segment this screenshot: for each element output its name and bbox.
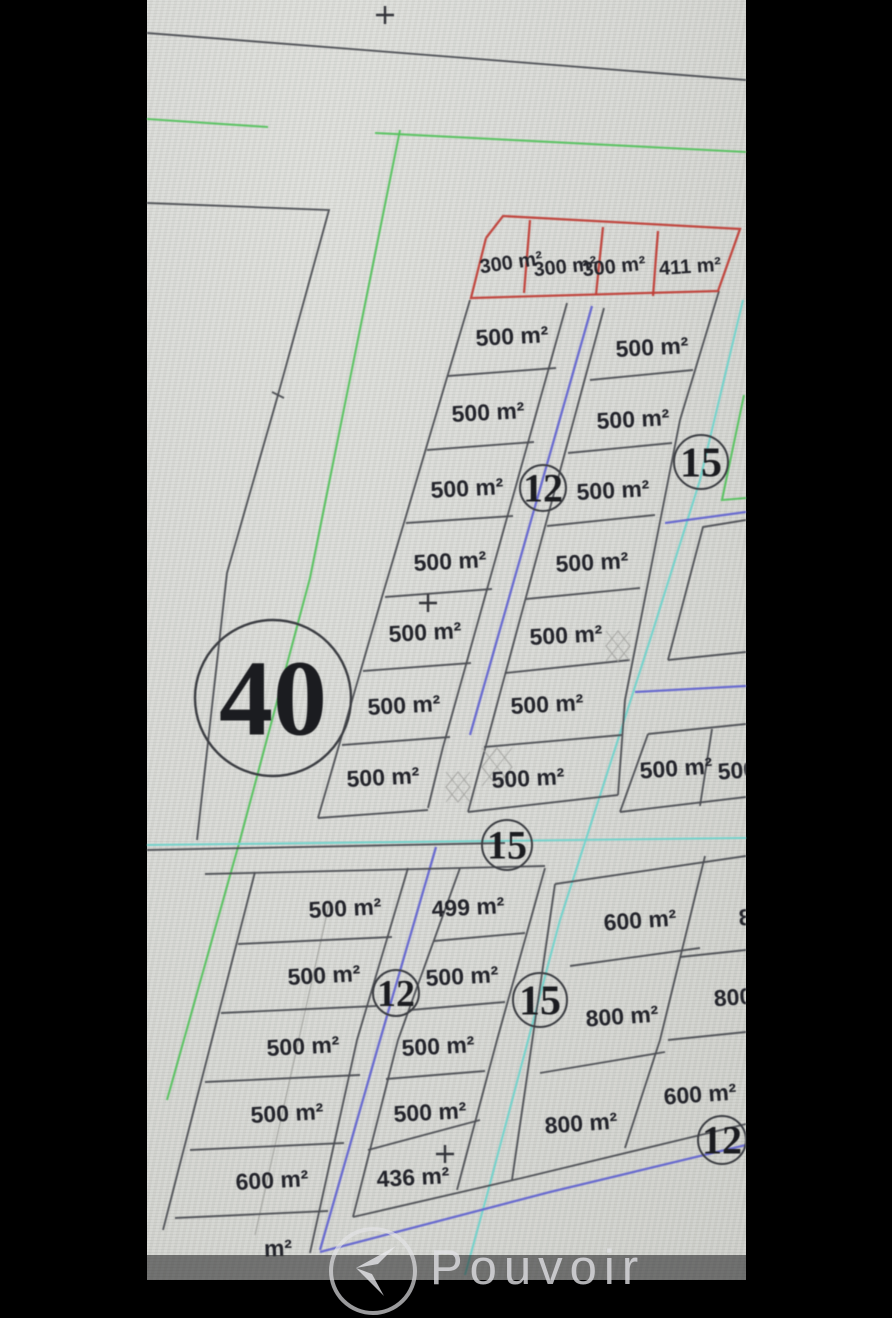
parcel-boundary-line (448, 368, 556, 376)
road-width-number: 40 (219, 640, 327, 759)
plot-area-label: 500 m² (308, 893, 382, 923)
parcel-boundary-line (590, 370, 693, 380)
road-width-number: 12 (523, 466, 563, 511)
plot-area-label: 500 m² (401, 1031, 475, 1061)
parcel-boundary-line (410, 1002, 505, 1010)
plot-area-label: 500 m² (451, 397, 525, 427)
parcel-boundary-line (385, 589, 492, 597)
plot-area-label: 500 m² (367, 690, 441, 720)
crosshair-mark (436, 1145, 454, 1163)
parcel-boundary-line (318, 810, 428, 818)
parcel-boundary-line (406, 516, 513, 523)
plot-area-label: 800 m² (544, 1108, 619, 1139)
parcel-boundary-line (342, 737, 450, 745)
parcel-boundary-line (680, 950, 746, 957)
parcel-boundary-line (526, 588, 640, 599)
green-road-line (722, 395, 746, 500)
plot-area-label: 436 m² (376, 1162, 450, 1192)
crosshair-mark (376, 6, 394, 24)
plot-area-label: 500 m² (596, 404, 670, 434)
road-width-number: 12 (377, 973, 415, 1015)
green-road-line (147, 119, 268, 127)
parcel-boundary-line (668, 652, 746, 660)
parcel-boundary-line (427, 442, 534, 450)
parcel-boundary-line (648, 724, 746, 734)
green-road-line (167, 130, 400, 1100)
plot-area-label: 500 m² (576, 475, 650, 505)
plot-area-label: 500 m² (510, 689, 584, 719)
plot-area-label: 500 m² (287, 960, 361, 990)
parcel-boundary-line (620, 797, 746, 812)
plot-area-label: 500 m² (529, 620, 603, 650)
plot-area-label: 800 m² (738, 900, 813, 931)
parcel-boundary-line (540, 1052, 665, 1073)
plot-area-label: 500 m² (250, 1098, 324, 1128)
plot-area-label: 499 m² (431, 892, 505, 922)
plot-area-label: 600 m² (603, 905, 678, 936)
road-width-number: 12 (702, 1118, 742, 1163)
plot-area-label: 500 m² (393, 1097, 467, 1127)
parcel-boundary-line (175, 1211, 328, 1218)
parcel-boundary-line (147, 33, 746, 80)
green-road-line (375, 133, 746, 152)
plot-area-label: 500 m² (615, 332, 689, 362)
plot-area-label: 600 m² (663, 1079, 738, 1110)
plot-area-label: 500 m² (555, 547, 629, 577)
plot-area-label: 500 m² (413, 546, 487, 576)
red-parcel-boundary-line (653, 231, 658, 296)
cadastral-plan-drawing: 40121515121512300 m²300 m²300 m²411 m²50… (0, 0, 892, 1280)
parcel-boundary-line (555, 856, 746, 884)
parcel-boundary-line (238, 937, 392, 944)
plot-area-label: 500 m² (717, 754, 792, 785)
parcel-boundary-line (190, 1143, 344, 1150)
plot-area-label: 500 m² (425, 961, 499, 991)
plot-area-label: 500 m² (430, 473, 504, 503)
parcel-boundary-line (386, 1071, 485, 1079)
parcel-boundary-line (205, 1075, 360, 1082)
plot-area-label: 500 m² (346, 762, 420, 792)
parcel-boundary-line (363, 663, 471, 671)
plot-area-label: 800 m² (585, 1001, 660, 1032)
parcel-boundary-line (221, 1006, 376, 1013)
road-width-number: 15 (519, 978, 561, 1024)
plot-area-label: 600 m² (235, 1165, 309, 1195)
parcel-boundary-line (668, 520, 746, 660)
plot-area-label: 500 m² (266, 1031, 340, 1061)
parcel-boundary-line (618, 291, 719, 795)
watermark-brand-text: Pouvoir (430, 1240, 645, 1296)
pouvoir-logo-icon (326, 1224, 420, 1318)
road-width-number: 15 (487, 823, 527, 868)
parcel-boundary-line (568, 443, 672, 453)
plot-area-label: 500 m² (491, 763, 565, 793)
parcel-boundary-line (505, 660, 630, 673)
plot-area-label: 500 m² (388, 617, 462, 647)
photo-of-screen: { "scene":{"width":892,"height":1280,"ph… (0, 0, 892, 1280)
crosshair-mark (419, 594, 437, 612)
parcel-boundary-line (434, 933, 525, 941)
parcel-boundary-line (668, 1032, 746, 1040)
plot-area-label: 500 m² (639, 753, 714, 784)
plot-area-label: 800 (713, 983, 753, 1012)
parcel-boundary-line (547, 515, 655, 526)
plot-area-label: 500 m² (475, 321, 549, 351)
blue-road-centerline (635, 686, 746, 692)
plot-area-label: 411 m² (658, 254, 722, 280)
road-width-number: 15 (680, 440, 722, 486)
parcel-boundary-line (484, 735, 622, 747)
